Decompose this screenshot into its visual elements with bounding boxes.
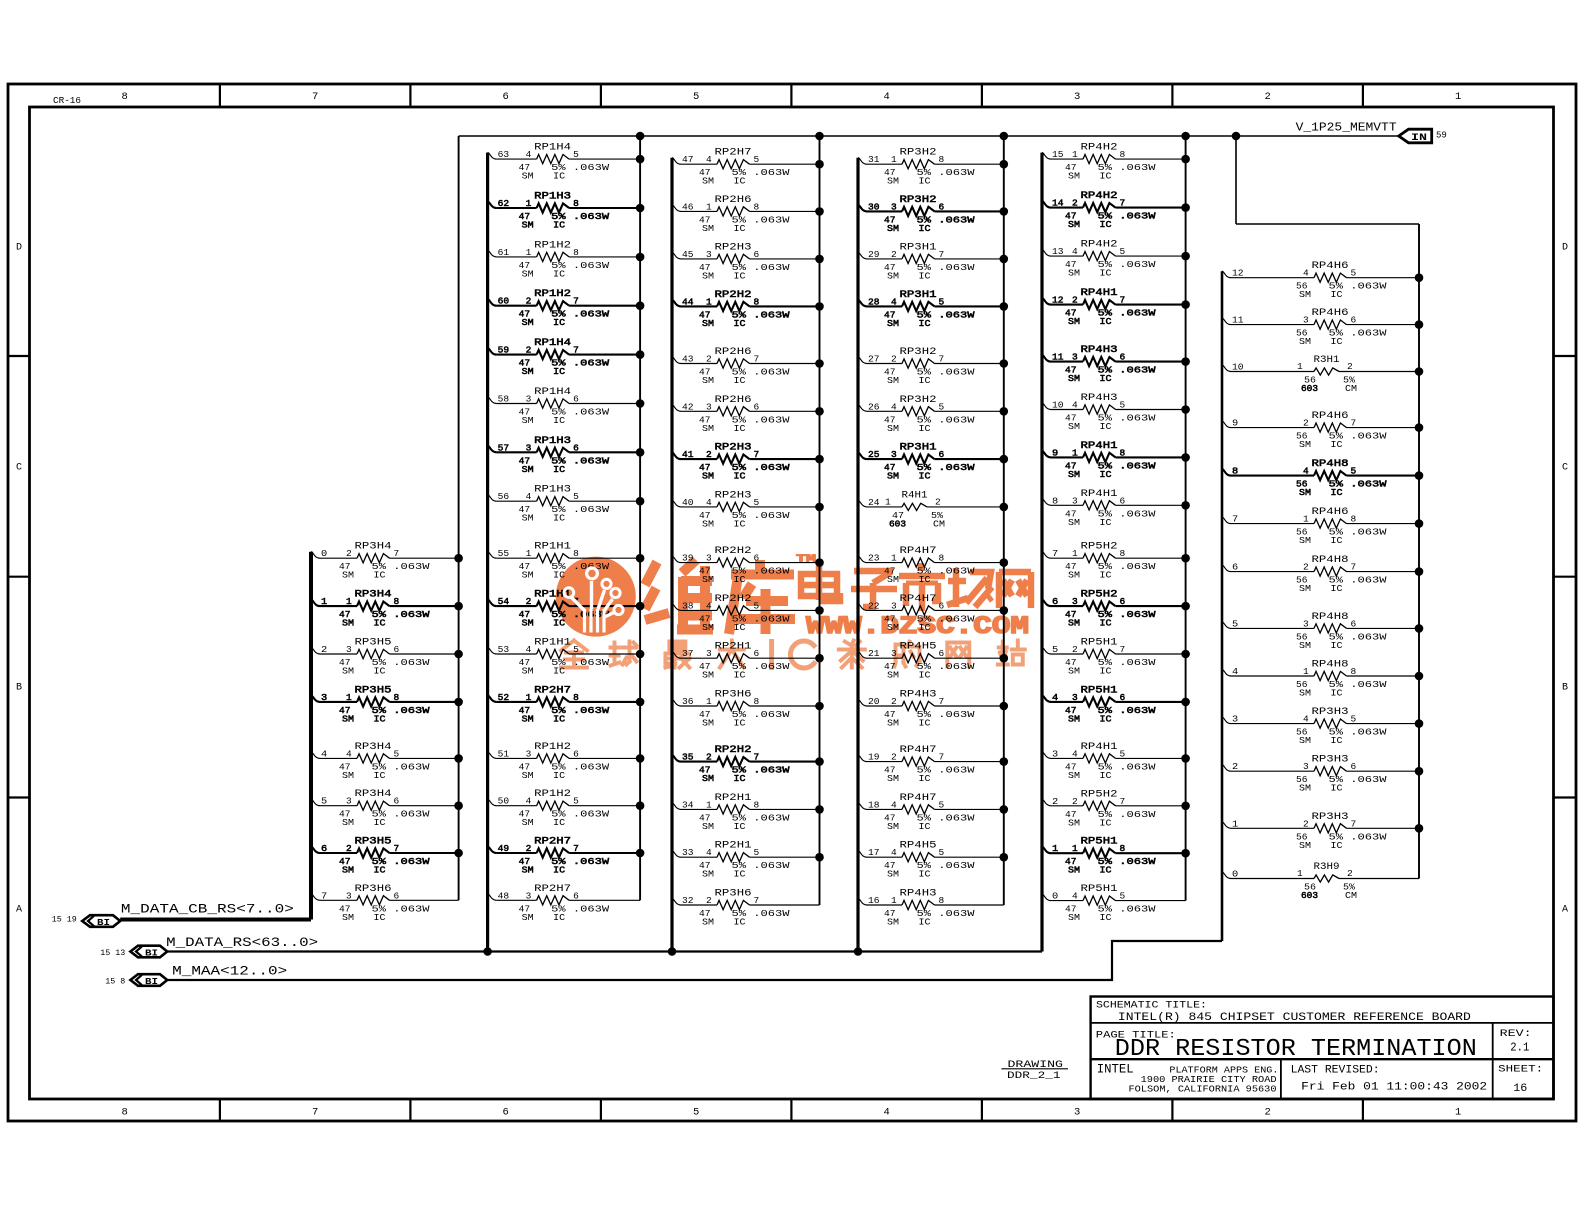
svg-text:1: 1 (1455, 91, 1461, 103)
svg-text:2: 2 (706, 449, 712, 460)
svg-text:IC: IC (1331, 583, 1343, 594)
svg-text:53: 53 (498, 644, 510, 655)
svg-text:SM: SM (522, 865, 534, 876)
svg-text:7: 7 (321, 890, 327, 901)
svg-text:RP4H6: RP4H6 (1312, 411, 1349, 422)
svg-text:1: 1 (706, 296, 712, 307)
svg-text:8: 8 (939, 895, 945, 906)
svg-text:IC: IC (1331, 336, 1343, 347)
svg-text:24: 24 (868, 497, 880, 508)
svg-text:D: D (16, 243, 22, 254)
svg-text:SM: SM (1068, 817, 1080, 828)
svg-text:SM: SM (522, 415, 534, 426)
svg-text:BI: BI (97, 917, 110, 928)
svg-text:M_MAA<12..0>: M_MAA<12..0> (172, 964, 287, 979)
svg-text:1: 1 (706, 696, 712, 707)
svg-text:1: 1 (526, 692, 532, 703)
svg-text:RP3H1: RP3H1 (900, 443, 937, 454)
svg-text:SM: SM (702, 869, 714, 880)
svg-text:IC: IC (734, 718, 746, 729)
svg-text:IC: IC (374, 570, 386, 581)
svg-text:IC: IC (1100, 865, 1112, 876)
svg-text:RP2H6: RP2H6 (715, 395, 752, 406)
svg-text:5: 5 (1232, 618, 1239, 629)
svg-text:B: B (1562, 683, 1568, 694)
svg-text:8: 8 (754, 799, 760, 810)
svg-text:1: 1 (706, 201, 712, 212)
svg-text:RP1H2: RP1H2 (534, 742, 571, 753)
svg-text:5: 5 (939, 401, 945, 412)
svg-text:SM: SM (702, 375, 714, 386)
svg-text:SM: SM (887, 423, 899, 434)
svg-text:16: 16 (1513, 1083, 1527, 1095)
svg-text:RP3H5: RP3H5 (355, 685, 392, 696)
svg-text:RP3H5: RP3H5 (355, 638, 392, 649)
svg-text:3: 3 (1232, 714, 1239, 725)
svg-text:6: 6 (503, 91, 509, 103)
svg-text:3: 3 (706, 553, 712, 564)
svg-text:50: 50 (498, 796, 510, 807)
svg-text:3: 3 (346, 796, 352, 807)
svg-text:8: 8 (573, 548, 579, 559)
svg-text:IC: IC (919, 670, 931, 681)
svg-text:SM: SM (1068, 268, 1080, 279)
svg-text:31: 31 (868, 154, 880, 165)
svg-text:SM: SM (1068, 421, 1080, 432)
svg-text:1: 1 (526, 548, 532, 559)
svg-text:2: 2 (1303, 818, 1309, 829)
svg-text:RP3H6: RP3H6 (715, 889, 752, 900)
svg-text:RP1H4: RP1H4 (534, 387, 571, 398)
svg-text:4: 4 (526, 796, 532, 807)
svg-text:RP4H8: RP4H8 (1312, 459, 1349, 470)
svg-text:IC: IC (1331, 735, 1343, 746)
svg-text:21: 21 (868, 648, 880, 659)
svg-text:2: 2 (1303, 562, 1309, 573)
svg-text:R4H1: R4H1 (902, 490, 928, 501)
svg-text:11: 11 (1232, 315, 1244, 326)
svg-text:SM: SM (522, 268, 534, 279)
svg-text:SM: SM (522, 366, 534, 377)
svg-text:6: 6 (1351, 618, 1357, 629)
svg-text:SM: SM (887, 821, 899, 832)
svg-text:15 13: 15 13 (100, 948, 125, 958)
svg-text:3: 3 (346, 890, 352, 901)
svg-text:IC: IC (1100, 666, 1112, 677)
svg-text:7: 7 (573, 843, 579, 854)
svg-text:B: B (16, 683, 22, 694)
svg-text:IC: IC (734, 518, 746, 529)
svg-text:IC: IC (1100, 817, 1112, 828)
svg-text:SM: SM (1299, 336, 1311, 347)
svg-text:SM: SM (887, 869, 899, 880)
svg-text:INTEL: INTEL (1097, 1063, 1134, 1077)
svg-text:CR-16: CR-16 (53, 96, 81, 106)
svg-text:SM: SM (1068, 219, 1080, 230)
svg-text:SM: SM (887, 375, 899, 386)
svg-text:SM: SM (702, 917, 714, 928)
svg-text:2: 2 (1072, 198, 1078, 209)
svg-text:6: 6 (1120, 596, 1126, 607)
svg-text:SM: SM (522, 171, 534, 182)
svg-text:IC: IC (734, 773, 746, 784)
svg-text:5: 5 (754, 154, 760, 165)
svg-text:IC: IC (553, 366, 565, 377)
svg-text:RP4H1: RP4H1 (1081, 489, 1118, 500)
svg-text:1: 1 (1072, 447, 1078, 458)
svg-text:1: 1 (1072, 149, 1078, 160)
svg-text:SHEET:: SHEET: (1498, 1063, 1543, 1075)
svg-text:A: A (1562, 905, 1568, 916)
svg-text:SM: SM (1068, 770, 1080, 781)
svg-text:RP4H2: RP4H2 (1081, 191, 1118, 202)
svg-text:IC: IC (374, 666, 386, 677)
svg-text:6: 6 (939, 648, 945, 659)
svg-text:3: 3 (526, 890, 532, 901)
svg-text:7: 7 (312, 1107, 318, 1119)
svg-text:5: 5 (1351, 268, 1357, 279)
svg-text:SM: SM (1299, 840, 1311, 851)
svg-text:IC: IC (1100, 219, 1112, 230)
svg-text:LAST REVISED:: LAST REVISED: (1291, 1064, 1380, 1076)
svg-text:D: D (1562, 243, 1568, 254)
svg-text:15 19: 15 19 (52, 915, 77, 925)
svg-text:IC: IC (734, 423, 746, 434)
svg-text:C: C (16, 463, 22, 474)
svg-text:RP2H7: RP2H7 (715, 148, 752, 159)
svg-text:IC: IC (553, 865, 565, 876)
svg-text:IC: IC (1100, 770, 1112, 781)
svg-text:4: 4 (526, 149, 532, 160)
svg-text:IC: IC (374, 770, 386, 781)
svg-text:1: 1 (526, 198, 532, 209)
svg-text:3: 3 (891, 600, 897, 611)
svg-text:6: 6 (1120, 495, 1126, 506)
svg-text:RP4H7: RP4H7 (900, 546, 937, 557)
svg-text:M_DATA_CB_RS<7..0>: M_DATA_CB_RS<7..0> (121, 901, 294, 916)
svg-text:19: 19 (868, 752, 880, 763)
svg-text:RP2H1: RP2H1 (715, 793, 752, 804)
svg-text:RP3H2: RP3H2 (900, 195, 937, 206)
svg-text:IC: IC (553, 464, 565, 475)
svg-text:IC: IC (734, 318, 746, 329)
svg-text:2: 2 (526, 296, 532, 307)
svg-text:C: C (1562, 463, 1568, 474)
svg-text:RP4H3: RP4H3 (900, 690, 937, 701)
svg-text:2: 2 (346, 843, 352, 854)
svg-text:5: 5 (939, 847, 945, 858)
svg-text:5: 5 (573, 796, 579, 807)
svg-text:4: 4 (1072, 246, 1078, 257)
svg-text:2: 2 (526, 843, 532, 854)
svg-text:RP4H2: RP4H2 (1081, 240, 1118, 251)
svg-text:IC: IC (1331, 535, 1343, 546)
svg-text:RP3H6: RP3H6 (355, 884, 392, 895)
svg-text:SM: SM (522, 912, 534, 923)
svg-text:IC: IC (553, 713, 565, 724)
svg-text:4: 4 (706, 154, 712, 165)
svg-text:6: 6 (394, 796, 400, 807)
svg-text:6: 6 (573, 442, 579, 453)
svg-text:7: 7 (1232, 514, 1238, 525)
svg-text:RP3H4: RP3H4 (355, 542, 392, 553)
svg-text:SM: SM (887, 471, 899, 482)
svg-text:4: 4 (884, 1107, 890, 1119)
svg-text:SM: SM (1068, 316, 1080, 327)
svg-text:3: 3 (526, 442, 532, 453)
svg-text:32: 32 (682, 895, 694, 906)
svg-text:6: 6 (754, 249, 760, 260)
svg-text:RP3H1: RP3H1 (900, 290, 937, 301)
svg-text:RP2H3: RP2H3 (715, 490, 752, 501)
svg-text:4: 4 (891, 847, 897, 858)
svg-text:SM: SM (702, 270, 714, 281)
svg-text:IC: IC (1100, 421, 1112, 432)
svg-text:4: 4 (321, 748, 328, 759)
svg-text:RP3H3: RP3H3 (1312, 755, 1349, 766)
svg-text:8: 8 (1120, 149, 1126, 160)
svg-text:2: 2 (1072, 295, 1078, 306)
svg-text:4: 4 (706, 847, 712, 858)
svg-text:1: 1 (891, 895, 897, 906)
svg-text:56: 56 (498, 491, 510, 502)
svg-text:2: 2 (935, 496, 941, 507)
svg-text:3: 3 (526, 394, 532, 405)
svg-text:RP4H3: RP4H3 (1081, 345, 1118, 356)
svg-text:IC: IC (1100, 713, 1112, 724)
svg-text:IC: IC (1331, 688, 1343, 699)
svg-text:4: 4 (884, 91, 890, 103)
svg-text:8: 8 (1120, 447, 1126, 458)
svg-text:SM: SM (522, 317, 534, 328)
svg-text:3: 3 (1074, 1107, 1080, 1119)
svg-text:7: 7 (939, 752, 945, 763)
svg-text:SM: SM (1299, 783, 1311, 794)
svg-text:BI: BI (145, 948, 158, 959)
svg-text:IC: IC (1331, 439, 1343, 450)
svg-text:55: 55 (498, 548, 510, 559)
svg-text:2: 2 (706, 895, 712, 906)
svg-text:SM: SM (702, 670, 714, 681)
svg-text:RP2H3: RP2H3 (715, 443, 752, 454)
svg-text:RP3H2: RP3H2 (900, 395, 937, 406)
svg-text:IC: IC (553, 912, 565, 923)
svg-text:RP3H1: RP3H1 (900, 242, 937, 253)
svg-text:8: 8 (1351, 514, 1357, 525)
svg-text:SM: SM (887, 917, 899, 928)
svg-text:9: 9 (1232, 418, 1239, 429)
svg-text:IC: IC (1100, 268, 1112, 279)
svg-text:RP4H6: RP4H6 (1312, 261, 1349, 272)
svg-text:7: 7 (939, 696, 945, 707)
svg-text:RP1H3: RP1H3 (534, 485, 571, 496)
svg-text:SM: SM (1299, 289, 1311, 300)
svg-text:CM: CM (1345, 383, 1357, 394)
svg-text:RP3H6: RP3H6 (715, 690, 752, 701)
svg-text:IC: IC (1331, 840, 1343, 851)
svg-text:7: 7 (573, 345, 579, 356)
svg-text:CM: CM (933, 518, 945, 529)
svg-text:SM: SM (1068, 570, 1080, 581)
svg-text:SM: SM (887, 773, 899, 784)
svg-text:8: 8 (394, 596, 400, 607)
svg-text:IC: IC (919, 869, 931, 880)
svg-text:SM: SM (1299, 439, 1311, 450)
svg-text:5: 5 (1120, 891, 1126, 902)
svg-text:2: 2 (1052, 796, 1059, 807)
svg-text:7: 7 (754, 752, 760, 763)
svg-text:7: 7 (939, 249, 945, 260)
svg-text:603: 603 (1301, 890, 1318, 901)
svg-text:12: 12 (1232, 268, 1244, 279)
svg-text:SM: SM (1299, 640, 1311, 651)
svg-text:5: 5 (394, 748, 400, 759)
svg-text:1: 1 (891, 553, 897, 564)
svg-text:IC: IC (374, 817, 386, 828)
svg-text:18: 18 (868, 799, 880, 810)
svg-text:SM: SM (342, 618, 354, 629)
svg-text:7: 7 (939, 354, 945, 365)
svg-text:IN: IN (1411, 132, 1427, 144)
svg-text:4: 4 (706, 497, 712, 508)
svg-text:RP2H6: RP2H6 (715, 195, 752, 206)
svg-text:2: 2 (1265, 91, 1271, 103)
svg-text:2: 2 (891, 696, 897, 707)
svg-text:IC: IC (374, 865, 386, 876)
svg-text:SM: SM (887, 318, 899, 329)
svg-text:3: 3 (1303, 761, 1309, 772)
svg-text:SM: SM (1068, 373, 1080, 384)
svg-text:RP4H6: RP4H6 (1312, 507, 1349, 518)
svg-text:4: 4 (891, 401, 897, 412)
svg-text:10: 10 (1232, 362, 1244, 373)
svg-text:1: 1 (885, 496, 891, 507)
svg-text:BI: BI (145, 976, 158, 987)
svg-text:6: 6 (394, 890, 400, 901)
svg-text:3: 3 (706, 249, 712, 260)
svg-text:SM: SM (1299, 535, 1311, 546)
svg-text:IC: IC (919, 471, 931, 482)
svg-text:4: 4 (1303, 268, 1309, 279)
svg-text:6: 6 (573, 890, 579, 901)
svg-text:SM: SM (1068, 517, 1080, 528)
svg-text:SCHEMATIC TITLE:: SCHEMATIC TITLE: (1096, 1000, 1207, 1012)
svg-text:IC: IC (734, 176, 746, 187)
svg-text:2: 2 (1347, 868, 1353, 879)
svg-text:INTEL(R) 845 CHIPSET CUSTOMER: INTEL(R) 845 CHIPSET CUSTOMER REFERENCE … (1118, 1012, 1471, 1024)
svg-text:FOLSOM, CALIFORNIA 95630: FOLSOM, CALIFORNIA 95630 (1129, 1084, 1277, 1095)
svg-text:42: 42 (682, 401, 694, 412)
svg-text:IC: IC (734, 821, 746, 832)
svg-text:2: 2 (1265, 1107, 1271, 1119)
svg-text:SM: SM (522, 464, 534, 475)
svg-text:46: 46 (682, 201, 694, 212)
svg-text:R3H1: R3H1 (1314, 355, 1340, 366)
svg-text:4: 4 (1232, 666, 1239, 677)
svg-text:45: 45 (682, 249, 694, 260)
svg-text:3: 3 (1072, 692, 1078, 703)
svg-text:RP2H6: RP2H6 (715, 347, 752, 358)
svg-text:7: 7 (1120, 198, 1126, 209)
svg-text:7: 7 (1351, 562, 1357, 573)
svg-text:IC: IC (1100, 618, 1112, 629)
svg-text:7: 7 (1351, 418, 1357, 429)
svg-text:5: 5 (1120, 748, 1126, 759)
svg-text:IC: IC (734, 471, 746, 482)
svg-text:A: A (16, 905, 22, 916)
svg-text:58: 58 (498, 394, 510, 405)
svg-text:IC: IC (919, 773, 931, 784)
svg-text:6: 6 (939, 449, 945, 460)
svg-text:IC: IC (1100, 373, 1112, 384)
svg-text:WWW.DZSC.COM: WWW.DZSC.COM (806, 612, 1029, 641)
svg-text:2: 2 (1072, 796, 1078, 807)
svg-text:5: 5 (693, 1107, 699, 1119)
svg-text:8: 8 (122, 1107, 128, 1119)
svg-text:8: 8 (1120, 548, 1126, 559)
svg-text:RP4H1: RP4H1 (1081, 441, 1118, 452)
svg-text:8: 8 (754, 201, 760, 212)
svg-text:36: 36 (682, 696, 694, 707)
svg-text:IC: IC (1331, 289, 1343, 300)
svg-text:8: 8 (1052, 495, 1059, 506)
svg-text:SM: SM (522, 770, 534, 781)
svg-text:DDR_2_1: DDR_2_1 (1007, 1071, 1061, 1082)
svg-text:8: 8 (573, 198, 579, 209)
svg-text:RP2H7: RP2H7 (534, 837, 571, 848)
svg-text:SM: SM (1299, 735, 1311, 746)
svg-text:RP3H3: RP3H3 (1312, 812, 1349, 823)
svg-text:SM: SM (522, 220, 534, 231)
svg-text:IC: IC (553, 770, 565, 781)
svg-text:Fri Feb 01 11:00:43 2002: Fri Feb 01 11:00:43 2002 (1301, 1082, 1487, 1094)
svg-text:SM: SM (887, 718, 899, 729)
svg-text:IC: IC (734, 375, 746, 386)
svg-text:5: 5 (754, 847, 760, 858)
svg-text:2: 2 (321, 644, 328, 655)
svg-text:IC: IC (919, 718, 931, 729)
svg-text:2: 2 (891, 354, 897, 365)
svg-text:RP3H3: RP3H3 (1312, 707, 1349, 718)
svg-text:IC: IC (734, 869, 746, 880)
svg-text:RP5H1: RP5H1 (1081, 884, 1118, 895)
svg-text:SM: SM (887, 176, 899, 187)
svg-text:RP2H2: RP2H2 (715, 290, 752, 301)
svg-text:RP2H3: RP2H3 (715, 242, 752, 253)
svg-text:4: 4 (1072, 748, 1078, 759)
svg-text:IC: IC (734, 670, 746, 681)
svg-text:IC: IC (919, 318, 931, 329)
svg-text:2: 2 (1303, 418, 1309, 429)
svg-text:8: 8 (939, 154, 945, 165)
svg-text:SM: SM (522, 817, 534, 828)
svg-text:SM: SM (887, 223, 899, 234)
svg-text:SM: SM (702, 176, 714, 187)
svg-text:SM: SM (887, 670, 899, 681)
svg-text:SM: SM (342, 713, 354, 724)
svg-text:RP4H8: RP4H8 (1312, 555, 1349, 566)
svg-text:RP2H7: RP2H7 (534, 685, 571, 696)
svg-text:CM: CM (1345, 890, 1357, 901)
svg-text:7: 7 (1120, 295, 1126, 306)
svg-text:2: 2 (1232, 761, 1239, 772)
svg-text:1: 1 (346, 596, 352, 607)
svg-text:4: 4 (891, 799, 897, 810)
svg-text:SM: SM (887, 270, 899, 281)
svg-text:SM: SM (522, 618, 534, 629)
svg-text:20: 20 (868, 696, 880, 707)
svg-text:2: 2 (526, 596, 532, 607)
